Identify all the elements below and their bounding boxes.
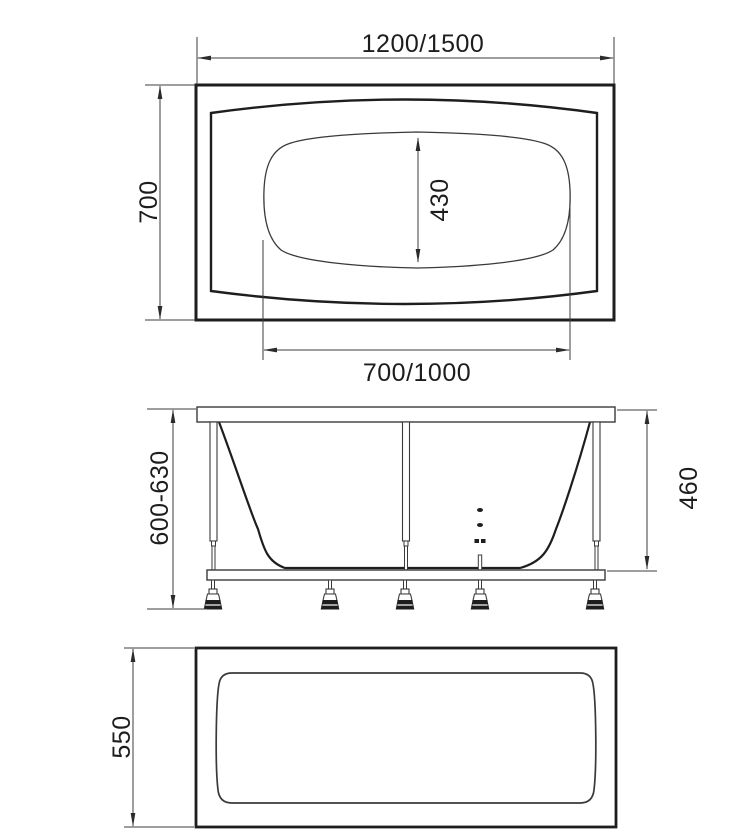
dim-install-height: 600-630 — [146, 409, 207, 609]
top-view: 1200/1500 700 430 700/1000 — [135, 30, 614, 387]
panel-outer-edge — [196, 648, 616, 827]
dim-panel-height: 550 — [108, 648, 194, 827]
dim-label-basin-length: 700/1000 — [363, 359, 471, 387]
foot-4 — [471, 580, 488, 609]
tub-rim-bar — [197, 407, 615, 422]
dim-label-basin-width: 430 — [426, 178, 454, 221]
support-leg-center — [403, 422, 410, 570]
dim-label-overall-length: 1200/1500 — [362, 30, 485, 58]
dim-label-install-height: 600-630 — [146, 450, 174, 545]
foot-2 — [321, 580, 338, 609]
dim-label-shell-height: 460 — [675, 466, 703, 509]
bathtub-dimension-drawing: 1200/1500 700 430 700/1000 — [0, 0, 750, 840]
drain-marks — [475, 508, 486, 570]
front-view: 600-630 460 — [146, 407, 703, 609]
tub-rim — [211, 100, 597, 305]
dim-overall-width: 700 — [135, 85, 195, 320]
dim-label-panel-height: 550 — [108, 715, 136, 758]
support-leg-right — [593, 422, 600, 570]
base-frame-bar — [207, 570, 605, 580]
support-leg-left — [210, 422, 217, 570]
foot-5 — [586, 580, 603, 609]
foot-1 — [204, 580, 221, 609]
foot-3 — [396, 580, 413, 609]
dim-shell-height: 460 — [607, 410, 703, 571]
dim-label-overall-width: 700 — [135, 180, 163, 223]
dim-overall-length: 1200/1500 — [197, 30, 614, 84]
drawing-svg: 1200/1500 700 430 700/1000 — [0, 0, 750, 840]
panel-view: 550 — [108, 648, 616, 827]
